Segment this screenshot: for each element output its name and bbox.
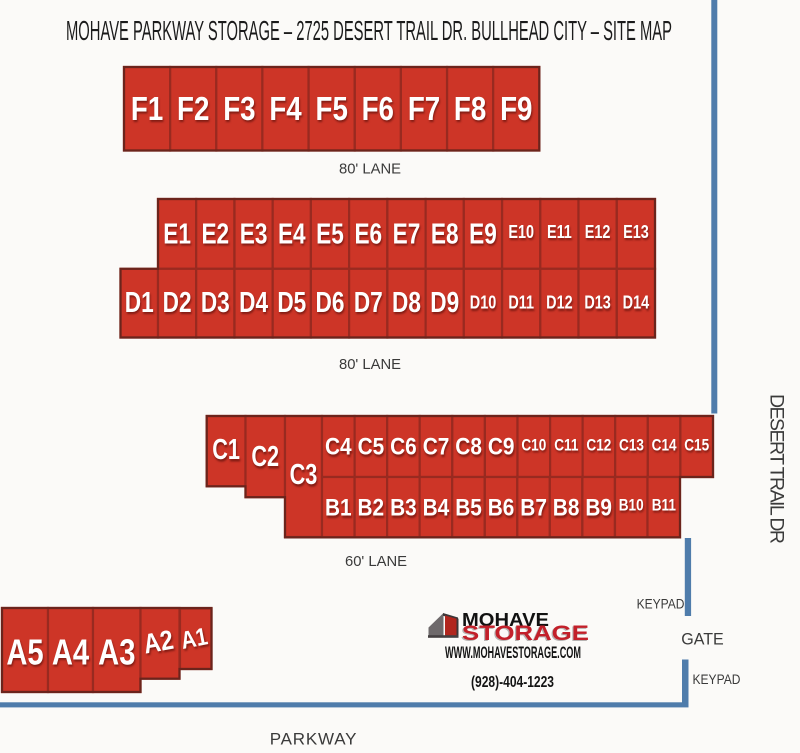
svg-text:F2: F2: [177, 91, 209, 128]
svg-text:STORAGE: STORAGE: [462, 622, 589, 645]
svg-text:D1: D1: [125, 285, 154, 318]
svg-text:C4: C4: [325, 432, 352, 460]
svg-text:C9: C9: [488, 432, 515, 460]
svg-text:C11: C11: [554, 436, 579, 455]
svg-text:F5: F5: [316, 91, 348, 128]
svg-text:A3: A3: [98, 632, 135, 673]
svg-text:C15: C15: [684, 436, 709, 455]
svg-text:C14: C14: [652, 436, 677, 455]
svg-text:C3: C3: [290, 459, 318, 491]
svg-text:D9: D9: [430, 285, 459, 318]
svg-text:E2: E2: [201, 217, 229, 250]
svg-text:B11: B11: [652, 496, 677, 515]
svg-text:F7: F7: [408, 91, 440, 128]
svg-text:(928)-404-1223: (928)-404-1223: [471, 674, 554, 691]
svg-text:D4: D4: [239, 285, 268, 318]
svg-text:E10: E10: [508, 221, 534, 242]
svg-text:E3: E3: [240, 217, 268, 250]
svg-text:C6: C6: [390, 432, 417, 460]
svg-text:C5: C5: [358, 432, 385, 460]
svg-text:C2: C2: [251, 441, 279, 473]
svg-text:A4: A4: [52, 632, 90, 673]
svg-text:E12: E12: [585, 221, 611, 242]
svg-text:C8: C8: [455, 432, 482, 460]
svg-text:E9: E9: [469, 217, 497, 250]
svg-text:B2: B2: [357, 493, 384, 521]
svg-text:D12: D12: [546, 292, 572, 313]
svg-text:C13: C13: [619, 436, 644, 455]
svg-text:E8: E8: [431, 217, 459, 250]
svg-text:E4: E4: [278, 217, 306, 250]
svg-text:80' LANE: 80' LANE: [339, 357, 401, 373]
svg-text:B7: B7: [520, 493, 547, 521]
svg-text:C1: C1: [212, 434, 240, 466]
svg-text:B8: B8: [553, 493, 580, 521]
svg-text:DESERT TRAIL DR: DESERT TRAIL DR: [766, 394, 788, 544]
svg-text:E5: E5: [316, 217, 344, 250]
svg-text:80' LANE: 80' LANE: [339, 162, 401, 178]
svg-text:D5: D5: [277, 285, 306, 318]
svg-text:F3: F3: [223, 91, 255, 128]
svg-text:D13: D13: [584, 292, 610, 313]
svg-text:D14: D14: [623, 292, 650, 313]
svg-text:B6: B6: [488, 493, 515, 521]
svg-text:B9: B9: [585, 493, 612, 521]
svg-text:F1: F1: [131, 91, 163, 128]
svg-text:E13: E13: [623, 221, 649, 242]
svg-text:E1: E1: [163, 217, 191, 250]
svg-text:B3: B3: [390, 493, 417, 521]
svg-text:D2: D2: [163, 285, 192, 318]
svg-text:PARKWAY: PARKWAY: [270, 730, 357, 749]
svg-text:C7: C7: [423, 432, 450, 460]
svg-text:D11: D11: [508, 292, 534, 313]
svg-text:F8: F8: [454, 91, 486, 128]
svg-text:KEYPAD: KEYPAD: [693, 671, 741, 687]
svg-text:C10: C10: [521, 436, 546, 455]
svg-text:D6: D6: [316, 285, 345, 318]
svg-text:60' LANE: 60' LANE: [345, 554, 407, 570]
svg-text:D10: D10: [470, 292, 496, 313]
svg-text:A1: A1: [178, 622, 209, 655]
svg-text:B10: B10: [619, 496, 644, 515]
svg-text:F9: F9: [500, 91, 532, 128]
svg-text:F6: F6: [362, 91, 394, 128]
svg-text:E6: E6: [354, 217, 382, 250]
svg-text:A5: A5: [6, 632, 43, 673]
svg-text:WWW.MOHAVESTORAGE.COM: WWW.MOHAVESTORAGE.COM: [445, 644, 581, 662]
svg-text:E11: E11: [547, 221, 572, 242]
svg-text:B4: B4: [423, 493, 450, 521]
svg-text:MOHAVE PARKWAY STORAGE – 2725: MOHAVE PARKWAY STORAGE – 2725 DESERT TRA…: [66, 15, 672, 46]
svg-text:A2: A2: [141, 625, 176, 660]
svg-text:D7: D7: [354, 285, 383, 318]
svg-text:D8: D8: [392, 285, 421, 318]
svg-text:B1: B1: [325, 493, 352, 521]
svg-text:GATE: GATE: [681, 630, 724, 648]
svg-text:B5: B5: [455, 493, 482, 521]
svg-text:C12: C12: [586, 436, 611, 455]
svg-text:KEYPAD: KEYPAD: [637, 595, 685, 611]
svg-text:E7: E7: [393, 217, 421, 250]
svg-text:F4: F4: [269, 91, 301, 128]
svg-text:D3: D3: [201, 285, 230, 318]
